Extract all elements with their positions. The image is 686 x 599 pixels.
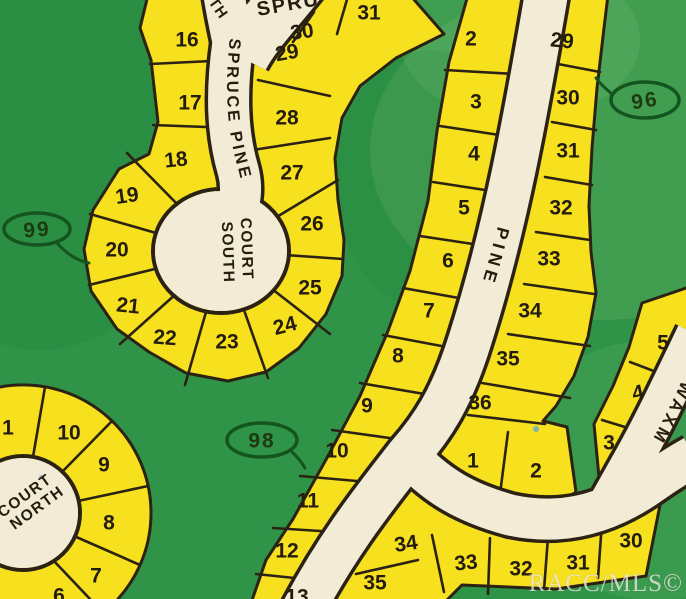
plat-map-canvas: SPRUCE PINE PINE WAXM TH SPRU COURT SOUT… [0, 0, 686, 599]
lot-number: 26 [300, 213, 323, 236]
lot-number: 31 [357, 2, 381, 25]
lot-number: 9 [98, 454, 110, 477]
lot-number: 5 [458, 197, 470, 220]
lot-number: 8 [103, 512, 115, 535]
lot-number: 33 [537, 248, 560, 271]
lot-number: 28 [275, 107, 299, 130]
lot-number: 31 [556, 140, 580, 163]
lot-number: 27 [280, 162, 303, 185]
lot-number: 25 [298, 277, 322, 300]
lot-number: 21 [115, 293, 141, 318]
lot-number: 32 [549, 197, 572, 220]
lot-number: 1 [467, 450, 479, 473]
lot-number: 7 [90, 565, 102, 588]
lot-number: 13 [285, 586, 308, 599]
lot-number: 20 [105, 239, 128, 262]
lot-number: 34 [518, 300, 542, 323]
lot-number: 1 [2, 417, 14, 440]
lot-number: 17 [178, 92, 201, 115]
blue-speck [533, 426, 539, 432]
lot-number: 30 [289, 19, 315, 45]
lot-number: 2 [530, 460, 542, 483]
lot-number: 35 [496, 348, 520, 371]
lot-number: 36 [468, 392, 491, 415]
lot-number: 6 [442, 250, 454, 273]
lot-number: 10 [57, 422, 80, 445]
lot-number: 3 [470, 91, 482, 114]
lot-number: 11 [297, 490, 320, 513]
lot-number: 30 [556, 87, 579, 110]
lot-number: 7 [423, 300, 435, 323]
lot-number: 18 [163, 147, 189, 172]
lot-number: 34 [393, 531, 420, 557]
lot-number: 2 [465, 28, 477, 51]
lot-number: 9 [361, 395, 373, 418]
lot-number: 29 [549, 28, 575, 53]
lot-number: 4 [468, 143, 480, 166]
lot-number: 12 [275, 540, 298, 563]
lot-number: 10 [325, 440, 348, 463]
lot-number: 33 [453, 550, 479, 575]
badge-98-value: 98 [248, 430, 275, 453]
court-south-line2: SOUTH [218, 221, 237, 283]
lot-number: 22 [153, 326, 178, 351]
badge-98-leader [291, 451, 305, 468]
badge-96-value: 96 [630, 88, 660, 115]
lot-number: 35 [363, 572, 387, 595]
lot-number: 3 [603, 432, 615, 455]
lot-number: 5 [657, 332, 669, 355]
lot-number: 6 [53, 585, 65, 599]
lot-number: 8 [392, 345, 404, 368]
plat-map: SPRUCE PINE PINE WAXM TH SPRU COURT SOUT… [0, 0, 686, 599]
lot-number: 16 [175, 29, 198, 52]
court-south-line1: COURT [237, 217, 256, 280]
lot-number: 23 [215, 331, 238, 354]
lot-number: 19 [114, 183, 140, 209]
badge-99-value: 99 [22, 217, 51, 242]
lot-number: 30 [619, 530, 642, 553]
mls-watermark: RACC/MLS© [529, 570, 683, 598]
area-badge-98: 98 [227, 423, 305, 468]
